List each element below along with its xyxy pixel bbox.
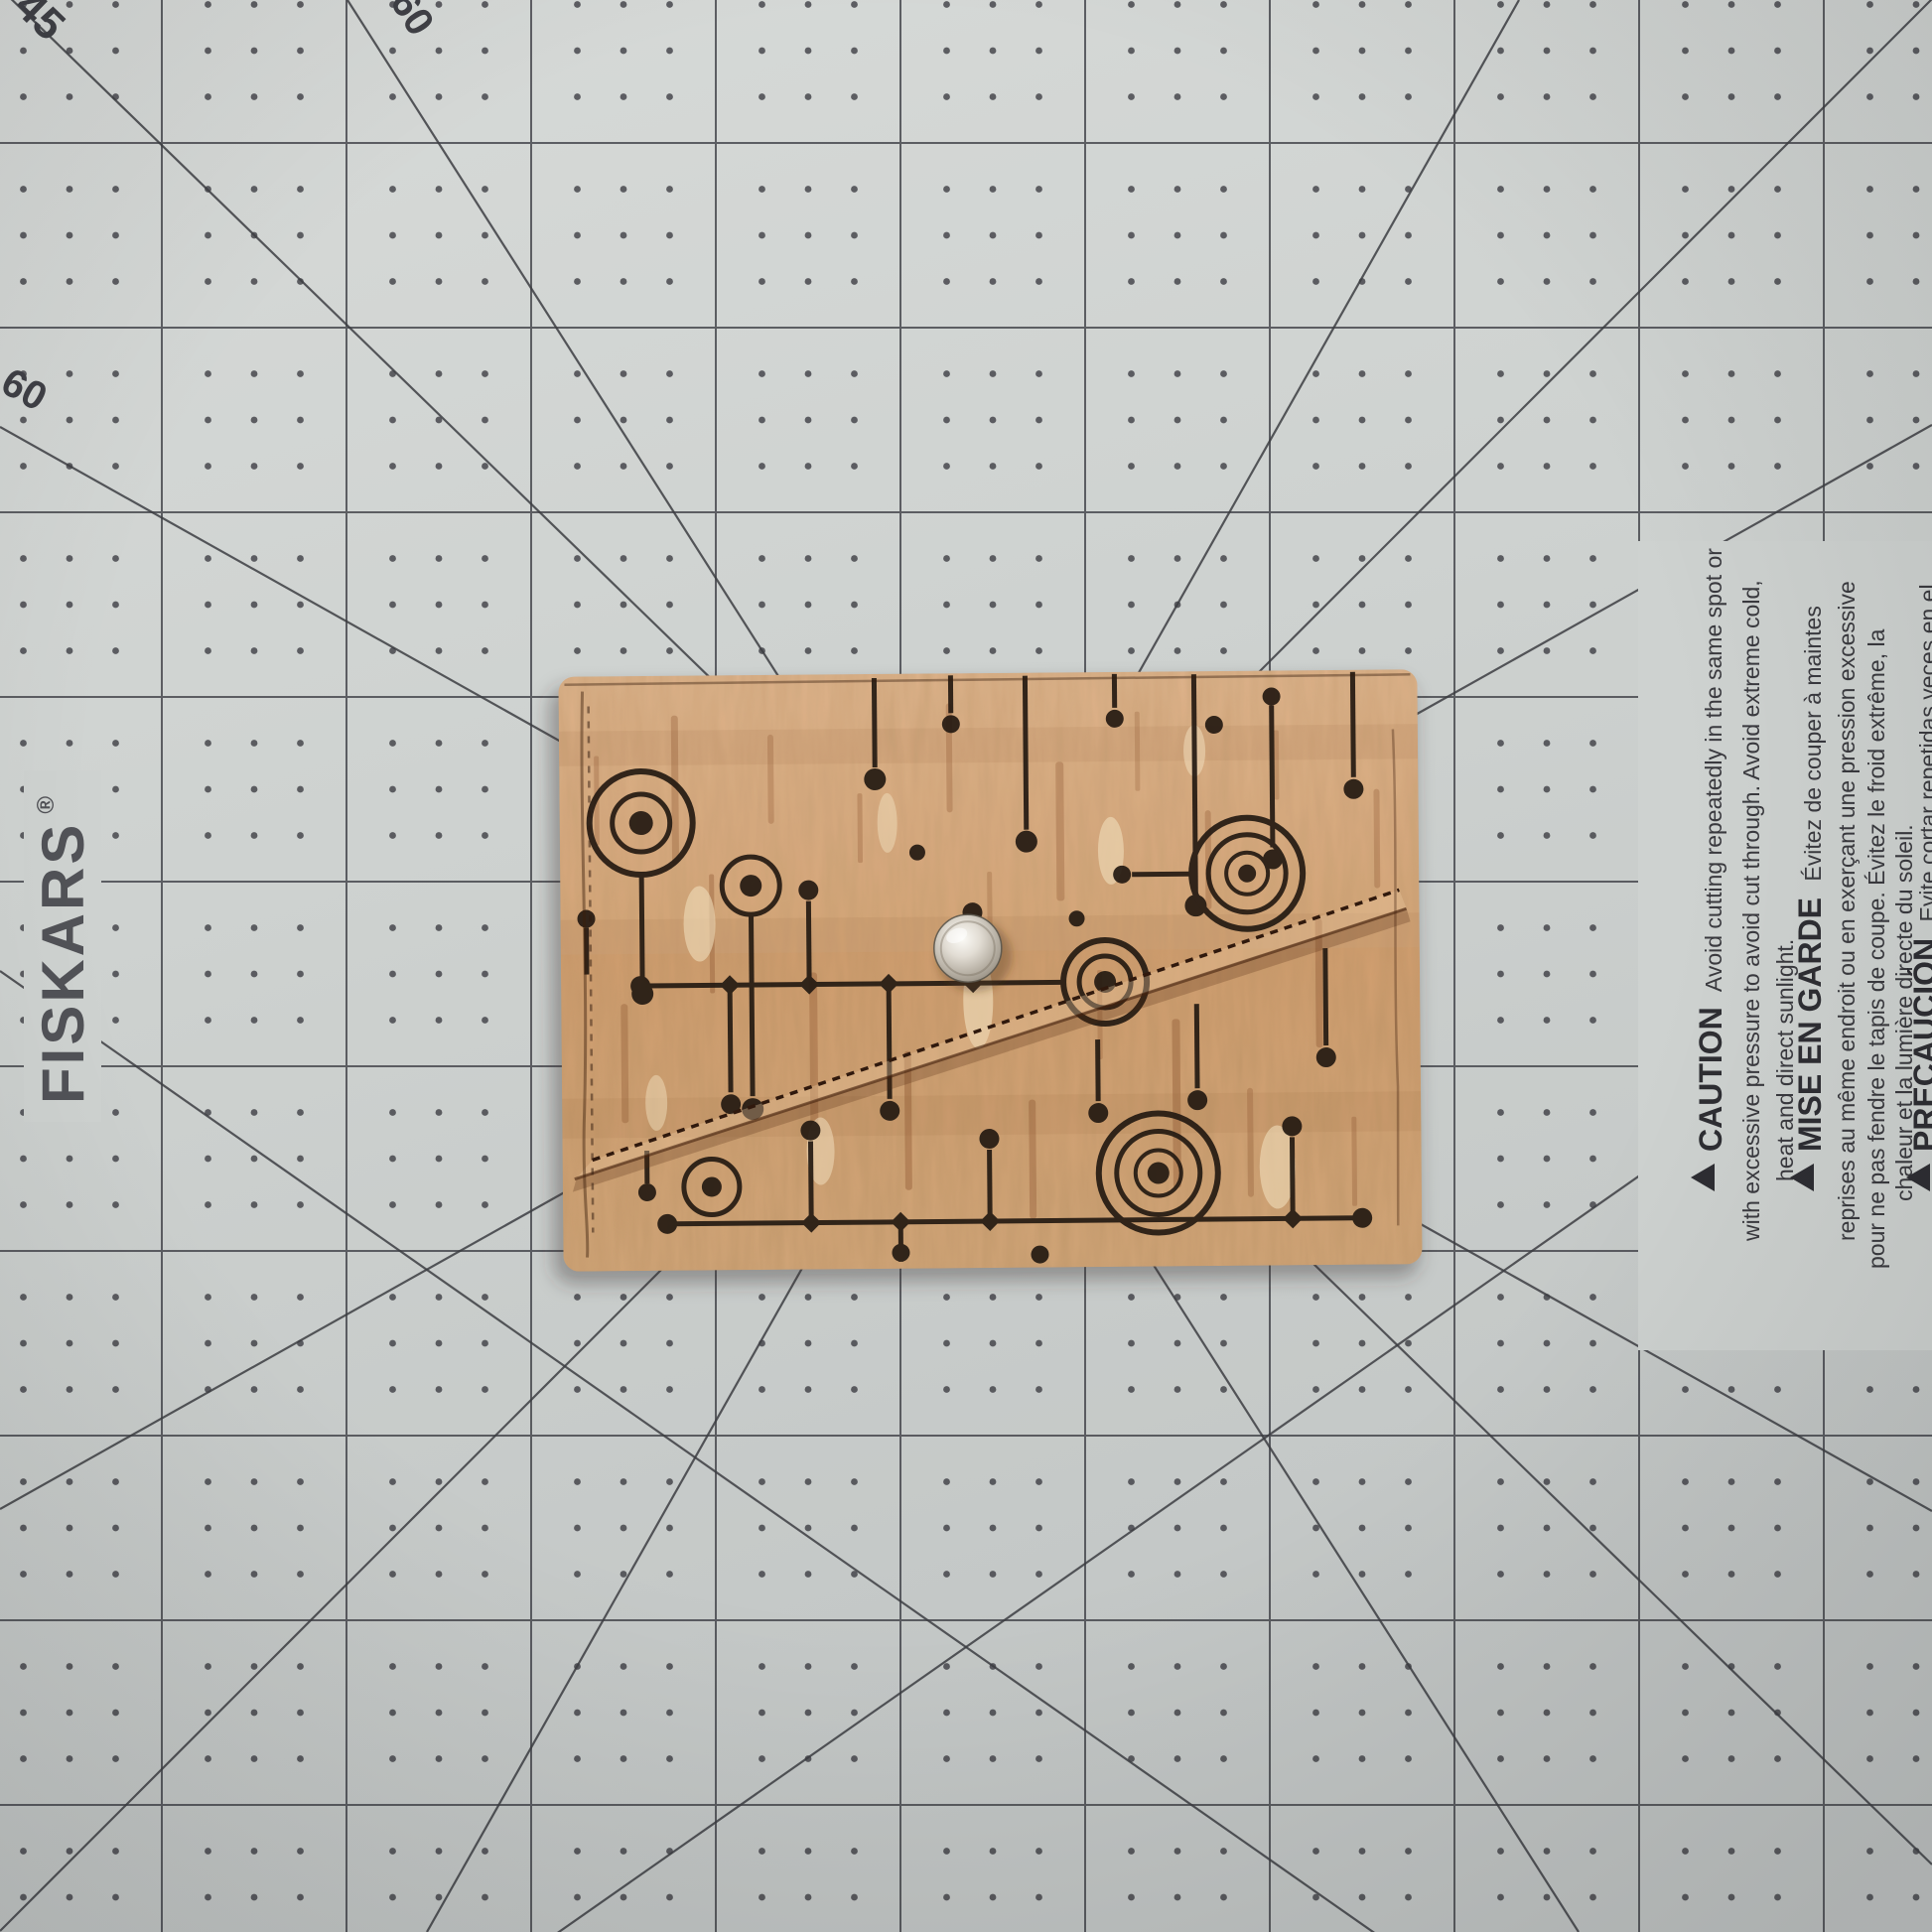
caution-heading: CAUTION bbox=[1693, 1007, 1728, 1152]
photo-canvas: 45 60 60 FISKARS® CAUTION Avoid cutting … bbox=[0, 0, 1932, 1932]
snap-cap bbox=[934, 914, 1003, 983]
precaucion-line-1: Evite cortar repetidas veces en el bbox=[1915, 584, 1932, 921]
photo-scene: 45 60 60 FISKARS® CAUTION Avoid cutting … bbox=[0, 0, 1932, 1932]
fiskars-logo: FISKARS® bbox=[30, 796, 96, 1104]
caution-line-2: with excessive pressure to avoid cut thr… bbox=[1738, 580, 1764, 1242]
registered-trademark-icon: ® bbox=[33, 796, 60, 814]
caution-line-1: Avoid cutting repeatedly in the same spo… bbox=[1701, 548, 1726, 992]
brand-wordmark: FISKARS bbox=[30, 822, 96, 1104]
mise-en-garde-line-1: Évitez de couper à maintes bbox=[1800, 606, 1826, 881]
cork-pouch bbox=[548, 669, 1422, 1285]
mise-en-garde-line-2: reprises au même endroit ou en exerçant … bbox=[1834, 581, 1860, 1241]
svg-text:FISKARS®: FISKARS® bbox=[30, 796, 96, 1104]
mise-en-garde-heading: MISE EN GARDE bbox=[1792, 897, 1828, 1152]
mise-en-garde-line-3: pour ne pas fendre le tapis de coupe. Év… bbox=[1863, 628, 1889, 1269]
precaucion-heading: PRECAUCIÓN bbox=[1907, 938, 1932, 1152]
